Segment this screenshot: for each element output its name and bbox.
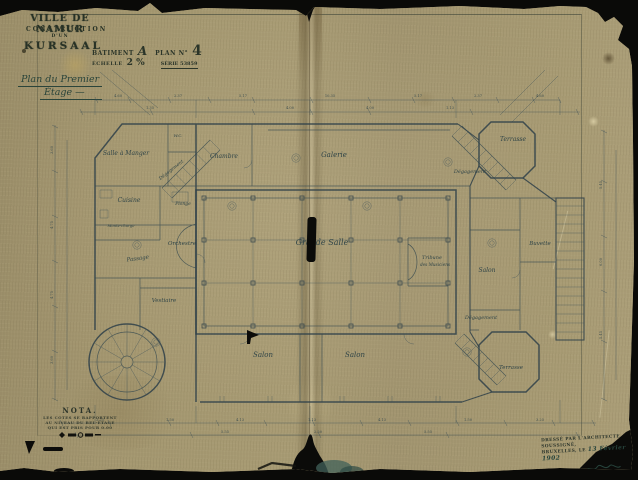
hall-columns [202, 196, 450, 328]
right-wing-walls [470, 198, 556, 330]
nota-title: NOTA. [38, 406, 122, 415]
outer-walls [95, 124, 462, 402]
spiral-stair-steps [90, 325, 164, 399]
room-label: Salle à Manger [103, 150, 150, 157]
dimension-label: 1.13 [446, 106, 455, 110]
room-label: Buvette [528, 241, 551, 247]
terrace-railing [556, 206, 584, 332]
ink-flag-mark [247, 330, 259, 344]
dimension-label: 4.13 [378, 418, 387, 422]
dimension-label: 1.50 [166, 418, 175, 422]
dimension-label: 5.45 [599, 330, 603, 339]
spiral-stair-hub [121, 356, 133, 368]
room-label: Orchestre [168, 241, 197, 247]
room-label: Passage [125, 254, 150, 263]
architect-signature-scrawl [582, 461, 623, 475]
room-labels: Salle à MangerW.C.ChambreGalerieTerrasse… [103, 133, 552, 371]
pencil-check-mark [258, 463, 296, 469]
room-label: Dégagement [453, 168, 487, 175]
fold-middle-hole [306, 217, 316, 262]
room-label: Galerie [321, 151, 347, 159]
dimension-label: 1.13 [308, 418, 317, 422]
dimension-label: 4.75 [50, 220, 54, 229]
room-label: Dégagement [156, 158, 185, 182]
dimension-label: 3.25 [536, 418, 545, 422]
black-triangle-mark [25, 441, 35, 454]
dimension-label: 5.55 [424, 430, 433, 434]
scale-bar-glyphs [56, 431, 102, 439]
dimension-ticks [52, 97, 607, 438]
dimension-label: 2.37 [174, 94, 183, 98]
room-label: Terrasse [499, 365, 524, 371]
fold-top-tear [303, 0, 319, 22]
room-label: Chambre [210, 153, 238, 160]
dimension-label: 5.45 [599, 180, 603, 189]
nota-line: QUI EST PRIS POUR 0.00 [38, 425, 122, 430]
black-bar-mark [43, 447, 63, 451]
room-label: Terrasse [500, 136, 527, 143]
room-label: W.C. [174, 133, 183, 138]
room-label: Monte-charge [106, 223, 135, 228]
room-label: Salon [345, 351, 365, 359]
hall-column-grid [204, 198, 448, 326]
dimension-label: 2.37 [474, 94, 483, 98]
dimension-label: 4.60 [114, 94, 123, 98]
room-label: Grande Salle [296, 238, 349, 247]
dimension-label: 4.75 [50, 290, 54, 299]
room-label: Cuisine [118, 197, 141, 204]
dimension-label: 4.60 [536, 94, 545, 98]
grande-salle-inner [204, 198, 448, 326]
dimension-label: 2.50 [314, 430, 323, 434]
dimension-label: 5.17 [239, 94, 248, 98]
bottom-center-blob [290, 434, 330, 480]
dimension-label: 5.17 [414, 94, 423, 98]
graphic-scale-bar [56, 431, 102, 439]
room-label: Dégagement [464, 314, 498, 321]
room-label: Vestiaire [152, 298, 177, 304]
window-ticks [220, 396, 440, 402]
bottom-left-mark [94, 472, 106, 476]
dimension-label: 4.00 [366, 106, 375, 110]
room-label: Salon [253, 351, 273, 359]
top-strip-walls [95, 124, 470, 186]
extension-lines [95, 100, 560, 423]
staircases [162, 126, 516, 385]
salon-divider-walls [300, 334, 322, 402]
dimension-label: 1.35 [146, 106, 155, 110]
tower-top-right [479, 122, 535, 178]
bottom-left-mark [54, 468, 74, 474]
ink-smudge-teal [340, 466, 364, 478]
room-label: Salon [478, 267, 495, 274]
scanned-plan-page: VILLE DE NAMUR CONSTRUCTION D'UN KURSAAL… [0, 0, 638, 480]
tower-bottom-right [479, 332, 539, 392]
dimension-label: 10.35 [325, 94, 336, 98]
nota-block: NOTA. LES COTES SE RAPPORTENT AU NIVEAU … [38, 406, 122, 430]
dimension-label: 5.55 [221, 430, 230, 434]
dimension-label: 1.50 [464, 418, 473, 422]
room-label: Tribune [422, 255, 442, 261]
architect-signature-block: DRESSÉ PAR L'ARCHITECTE SOUSSIGNÉ, BRUXE… [541, 434, 635, 480]
dimension-label: 6.00 [599, 257, 603, 266]
plan-paper-sheet: VILLE DE NAMUR CONSTRUCTION D'UN KURSAAL… [0, 0, 638, 480]
dimension-label: 3.60 [50, 145, 54, 154]
room-label: des Musiciens [420, 262, 450, 267]
dimension-label: 4.00 [286, 106, 295, 110]
dimension-label: 4.13 [236, 418, 245, 422]
room-label: Plonge [174, 201, 191, 207]
dimension-label: 3.60 [50, 355, 54, 364]
